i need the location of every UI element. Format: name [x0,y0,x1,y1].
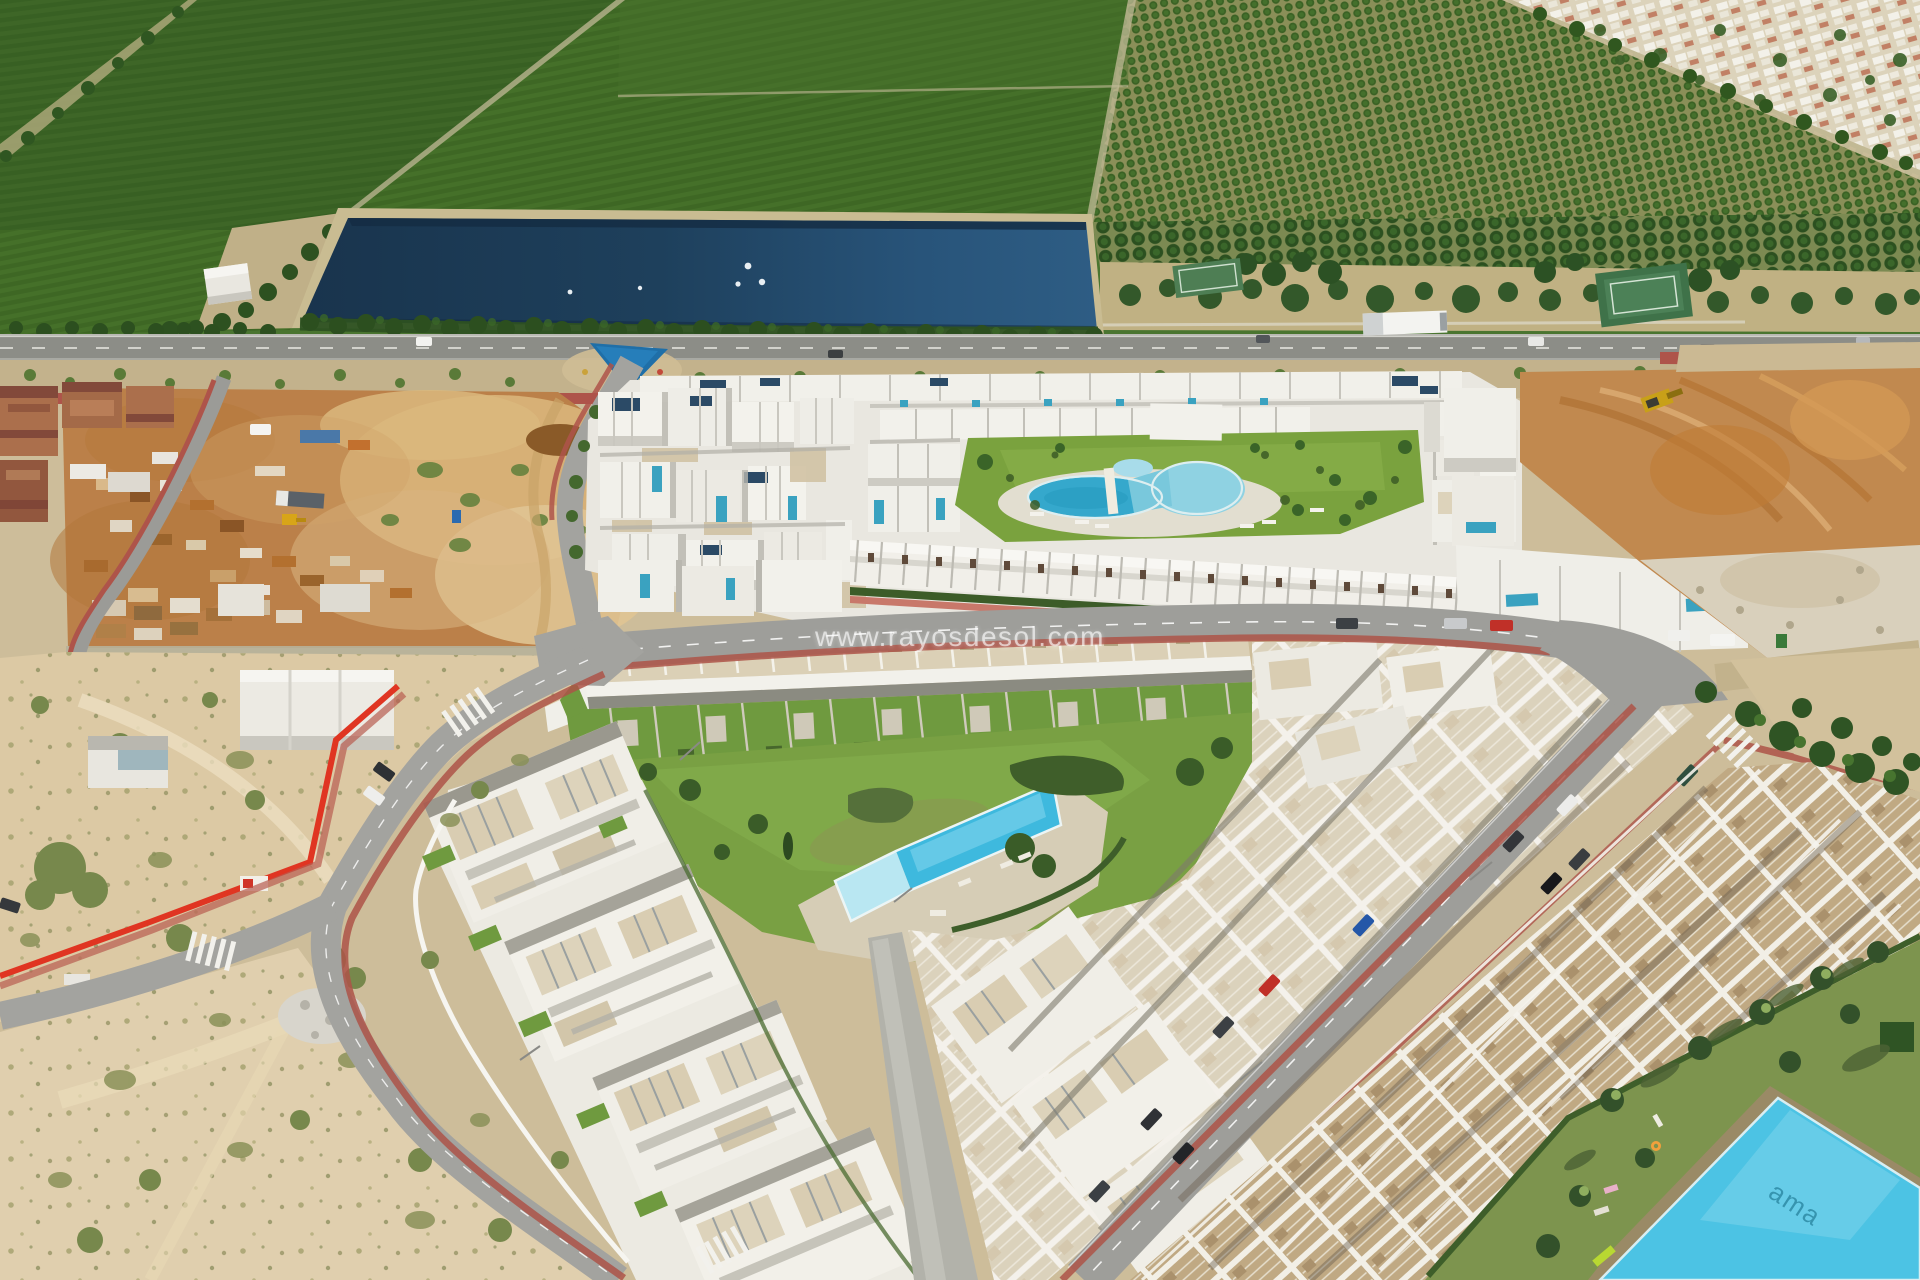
svg-text:www.rayosdesol.com: www.rayosdesol.com [814,621,1105,652]
